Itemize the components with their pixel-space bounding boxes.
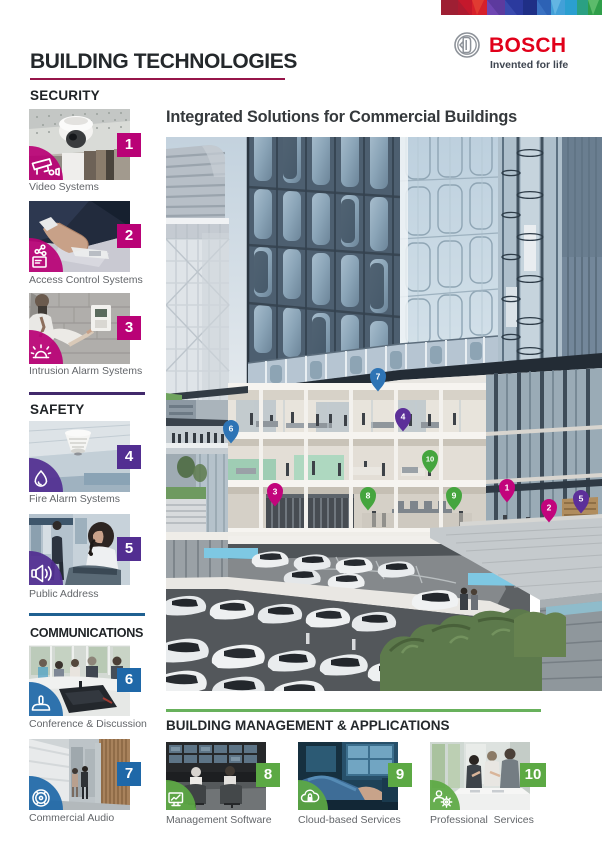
svg-text:10: 10	[426, 455, 434, 464]
svg-text:9: 9	[452, 491, 457, 501]
svg-text:2: 2	[547, 503, 552, 513]
svg-text:7: 7	[376, 372, 381, 382]
svg-text:5: 5	[579, 494, 584, 504]
svg-text:1: 1	[505, 483, 510, 493]
svg-text:6: 6	[229, 424, 234, 434]
svg-text:4: 4	[401, 412, 406, 422]
svg-text:8: 8	[366, 491, 371, 501]
svg-text:3: 3	[273, 487, 278, 497]
